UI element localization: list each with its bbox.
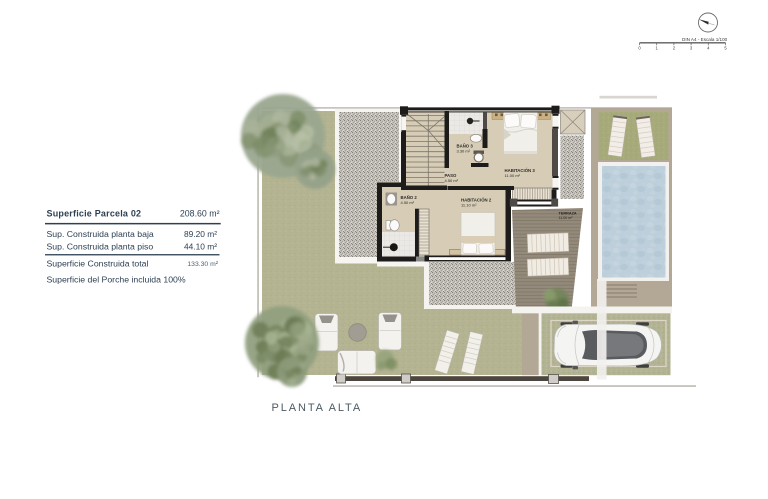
- svg-text:11.10 m²: 11.10 m²: [461, 203, 477, 208]
- svg-text:208.60 m²: 208.60 m²: [180, 208, 220, 218]
- svg-text:Superficie Parcela 02: Superficie Parcela 02: [47, 209, 142, 219]
- svg-text:3.30 m²: 3.30 m²: [457, 148, 471, 153]
- svg-text:11.00 m²: 11.00 m²: [505, 173, 521, 178]
- svg-text:Sup. Construida planta piso: Sup. Construida planta piso: [47, 241, 154, 251]
- svg-text:4.50 m²: 4.50 m²: [445, 178, 459, 183]
- svg-text:11.00 m²: 11.00 m²: [559, 216, 574, 220]
- svg-text:Superficie Construida total: Superficie Construida total: [47, 259, 149, 269]
- svg-text:DIN A4 - Escala 1/100: DIN A4 - Escala 1/100: [682, 37, 728, 42]
- svg-text:44.10 m²: 44.10 m²: [184, 241, 217, 251]
- svg-text:133.30 m²: 133.30 m²: [187, 261, 218, 268]
- svg-text:Sup. Construida planta baja: Sup. Construida planta baja: [47, 229, 154, 239]
- svg-text:89.20 m²: 89.20 m²: [184, 229, 217, 239]
- svg-text:Superficie del Porche incluida: Superficie del Porche incluida 100%: [47, 274, 186, 284]
- svg-text:PLANTA ALTA: PLANTA ALTA: [272, 402, 363, 414]
- svg-text:TERRAZA: TERRAZA: [559, 212, 577, 216]
- svg-text:4.50 m²: 4.50 m²: [401, 200, 415, 205]
